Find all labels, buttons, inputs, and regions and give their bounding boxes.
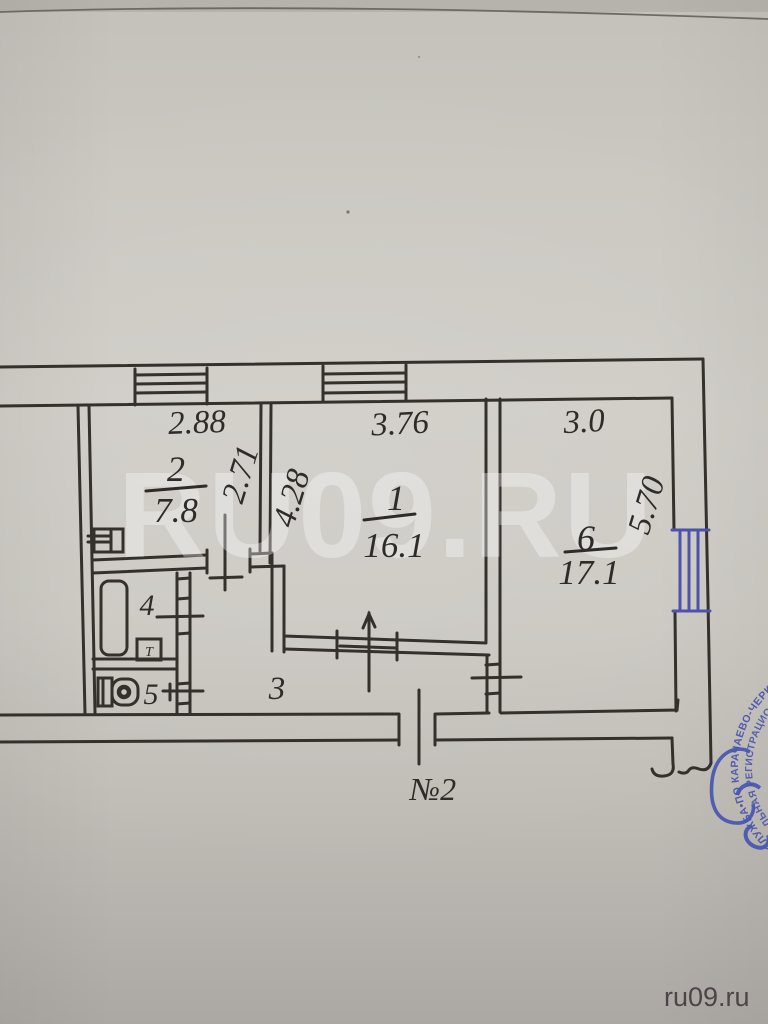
svg-text:16.1: 16.1	[363, 526, 424, 565]
svg-text:1: 1	[387, 478, 405, 518]
svg-text:3.0: 3.0	[562, 403, 607, 441]
svg-text:7.8: 7.8	[154, 491, 198, 530]
svg-text:2: 2	[167, 449, 185, 489]
svg-text:3: 3	[268, 671, 286, 707]
svg-text:ru09.ru: ru09.ru	[664, 982, 750, 1012]
svg-text:5: 5	[144, 678, 159, 711]
svg-text:T: T	[145, 645, 154, 660]
svg-text:17.1: 17.1	[558, 553, 619, 592]
svg-text:2.88: 2.88	[168, 404, 227, 442]
svg-text:№2: №2	[409, 771, 456, 807]
svg-text:3.76: 3.76	[369, 404, 430, 443]
svg-text:4: 4	[140, 589, 155, 622]
